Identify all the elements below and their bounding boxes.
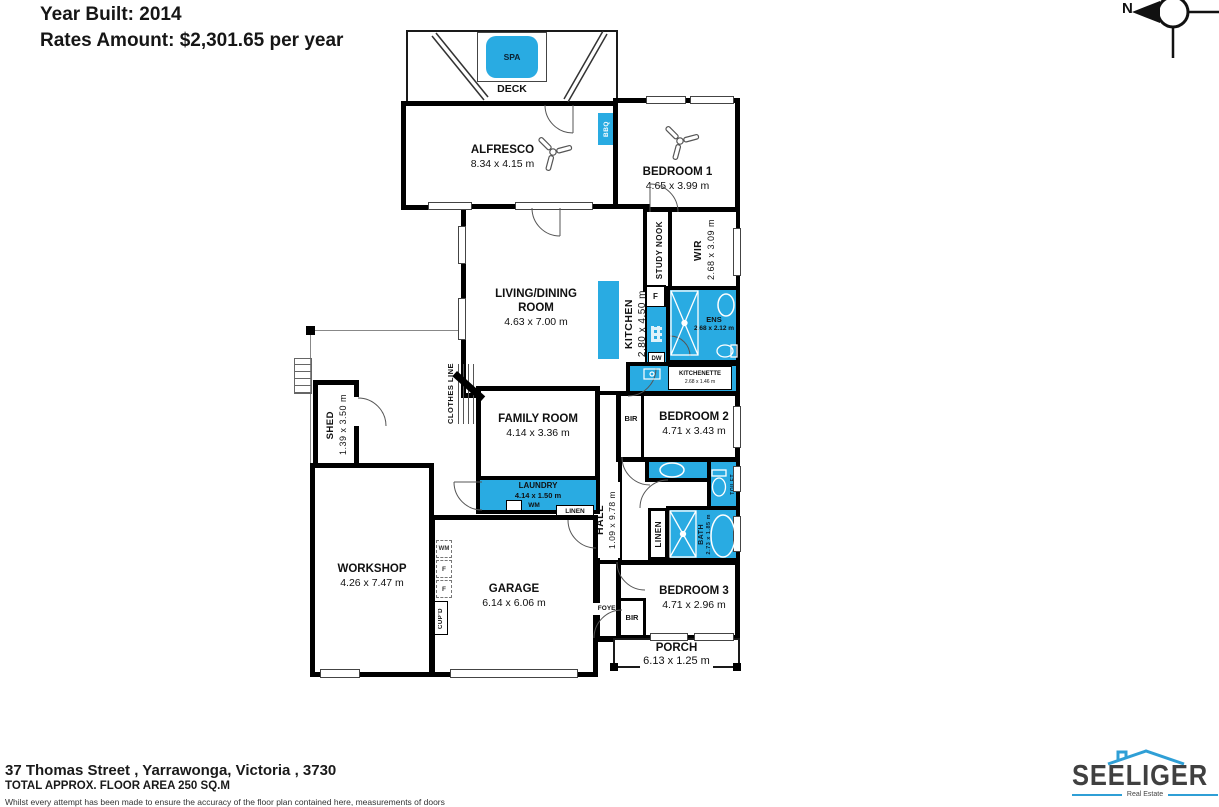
ens-basin-icon (718, 294, 734, 316)
logo-rule (1168, 794, 1218, 796)
kitchenette-sink-icon (644, 369, 660, 379)
deck-bay-lines (432, 31, 607, 102)
footer-info: 37 Thomas Street , Yarrawonga, Victoria … (5, 762, 705, 807)
trough-icon (511, 502, 517, 508)
ceiling-fan-icon (538, 137, 572, 171)
vanity-basin-icon (660, 463, 684, 477)
bath-shower-icon (670, 511, 696, 557)
logo-tagline-row: Real Estate (1072, 791, 1218, 798)
ens-shower-icon (671, 291, 698, 355)
address-text: 37 Thomas Street , Yarrawonga, Victoria … (5, 762, 705, 779)
floor-area-text: TOTAL APPROX. FLOOR AREA 250 SQ.M (5, 780, 705, 792)
ens-toilet-icon (717, 345, 737, 357)
disclaimer-text: Whilst every attempt has been made to en… (5, 797, 705, 807)
logo-rule (1072, 794, 1122, 796)
agency-logo: SEELIGER Real Estate (1072, 748, 1218, 800)
floorplan-page: { "header": { "year_built": "Year Built:… (0, 0, 1219, 800)
toilet-icon (712, 470, 726, 496)
door-arcs (358, 105, 690, 638)
logo-tagline: Real Estate (1122, 791, 1168, 798)
plan-overlay (0, 0, 1219, 800)
logo-name: SEELIGER (1072, 760, 1208, 793)
bathtub-icon (711, 515, 735, 557)
ceiling-fan-icon (665, 126, 699, 160)
